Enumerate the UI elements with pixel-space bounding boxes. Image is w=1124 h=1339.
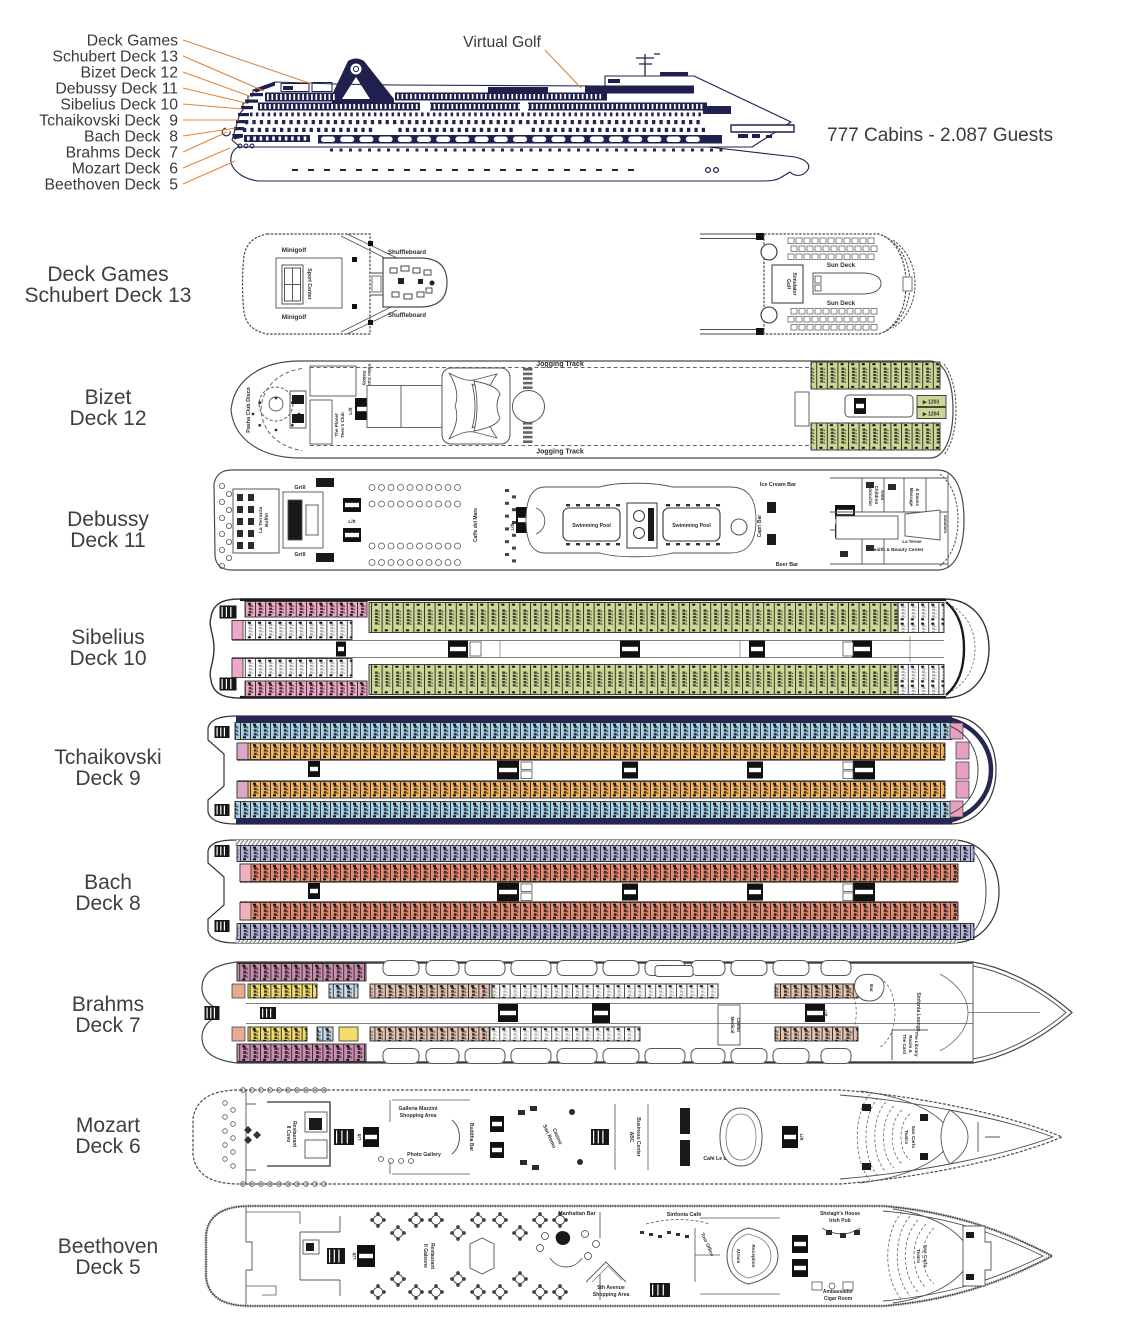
- svg-text:Photo Gallery: Photo Gallery: [407, 1152, 441, 1158]
- svg-text:Deck Games: Deck Games: [47, 263, 168, 286]
- svg-text:Shopping Area: Shopping Area: [593, 1292, 630, 1298]
- svg-text:Simulator: Simulator: [791, 272, 797, 295]
- svg-text:Deck 9: Deck 9: [75, 767, 140, 790]
- svg-text:Galleria Mazzini: Galleria Mazzini: [399, 1106, 438, 1112]
- svg-text:Deck 7: Deck 7: [75, 1014, 140, 1037]
- svg-text:Debussy: Debussy: [67, 508, 149, 531]
- svg-text:Il Covo: Il Covo: [285, 1126, 291, 1143]
- svg-text:5th Avenue: 5th Avenue: [597, 1285, 625, 1291]
- svg-text:Teatro: Teatro: [903, 1130, 909, 1144]
- svg-text:Jogging Track: Jogging Track: [536, 361, 584, 368]
- svg-text:Schubert Deck 13: Schubert Deck 13: [25, 284, 192, 307]
- svg-text:Teen's Club: Teen's Club: [340, 412, 345, 438]
- svg-text:Caffe del Mare: Caffe del Mare: [473, 508, 479, 542]
- svg-text:Golf: Golf: [785, 279, 791, 289]
- svg-text:Swimming Pool: Swimming Pool: [672, 523, 711, 529]
- svg-text:Business Center: Business Center: [635, 1117, 641, 1157]
- svg-text:Minigolf: Minigolf: [282, 314, 307, 321]
- svg-text:Sinfonia Lounge: Sinfonia Lounge: [915, 992, 921, 1031]
- svg-text:Sport Center: Sport Center: [306, 268, 312, 299]
- svg-text:Buffet: Buffet: [264, 513, 270, 527]
- svg-text:Restaurant: Restaurant: [291, 1121, 297, 1147]
- svg-text:777 Cabins - 2.087 Guests: 777 Cabins - 2.087 Guests: [827, 125, 1053, 146]
- svg-text:Deck Games: Deck Games: [87, 33, 178, 50]
- svg-text:Sun Deck: Sun Deck: [827, 262, 856, 269]
- svg-text:Bach Deck 8: Bach Deck 8: [84, 129, 178, 146]
- svg-text:Buddha Bar: Buddha Bar: [468, 1123, 474, 1151]
- svg-text:Galaxy: Galaxy: [362, 370, 367, 386]
- svg-text:Bizet: Bizet: [85, 386, 132, 409]
- svg-text:Lift: Lift: [352, 1252, 357, 1259]
- svg-text:La Terrazza: La Terrazza: [258, 507, 264, 533]
- svg-text:Debussy Deck 11: Debussy Deck 11: [55, 81, 178, 98]
- svg-text:Area: Area: [880, 490, 885, 501]
- svg-text:Solarium: Solarium: [943, 515, 948, 533]
- svg-text:▶ 1204: ▶ 1204: [922, 412, 940, 418]
- svg-text:Tchaikovski: Tchaikovski: [54, 746, 161, 769]
- svg-text:Irish Pub: Irish Pub: [829, 1218, 850, 1224]
- svg-text:Lift: Lift: [348, 407, 353, 415]
- svg-text:Manhattan Bar: Manhattan Bar: [558, 1211, 596, 1217]
- svg-text:Shelagh's House: Shelagh's House: [820, 1211, 860, 1217]
- svg-text:Room &: Room &: [908, 1035, 913, 1053]
- svg-text:Lift: Lift: [799, 1134, 804, 1141]
- svg-text:Mozart Deck 6: Mozart Deck 6: [72, 161, 178, 178]
- svg-text:Beethoven Deck 5: Beethoven Deck 5: [45, 177, 179, 194]
- svg-text:La Terme: La Terme: [902, 539, 922, 544]
- svg-text:Sibelius Deck 10: Sibelius Deck 10: [60, 97, 178, 114]
- svg-text:San Carlo: San Carlo: [910, 1126, 916, 1148]
- svg-text:Deck 10: Deck 10: [69, 647, 146, 670]
- svg-text:Sibelius: Sibelius: [71, 626, 145, 649]
- svg-text:Brahms Deck 7: Brahms Deck 7: [66, 145, 178, 162]
- svg-text:Shuffleboard: Shuffleboard: [388, 249, 426, 256]
- svg-text:Deck 5: Deck 5: [75, 1256, 140, 1279]
- svg-text:Bizet Deck 12: Bizet Deck 12: [81, 65, 178, 82]
- svg-text:& Sauna: & Sauna: [915, 488, 920, 506]
- svg-text:Shopping Area: Shopping Area: [400, 1113, 437, 1119]
- svg-text:Beer Bar: Beer Bar: [776, 562, 799, 568]
- svg-text:Minigolf: Minigolf: [282, 247, 307, 254]
- svg-text:Lift: Lift: [510, 523, 515, 530]
- svg-text:Lift: Lift: [823, 1010, 828, 1017]
- svg-text:Virtual Golf: Virtual Golf: [463, 34, 541, 51]
- svg-text:Children: Children: [874, 486, 879, 505]
- svg-text:Deck 8: Deck 8: [75, 892, 140, 915]
- svg-text:Mozart: Mozart: [76, 1114, 140, 1137]
- svg-text:Medical: Medical: [730, 1017, 735, 1034]
- svg-text:▶ 1203: ▶ 1203: [922, 400, 940, 406]
- svg-text:Tchaikovski Deck 9: Tchaikovski Deck 9: [39, 113, 178, 130]
- svg-text:Shuffleboard: Shuffleboard: [388, 312, 426, 319]
- svg-text:Jogging Track: Jogging Track: [536, 449, 584, 456]
- svg-text:Deck 11: Deck 11: [70, 529, 145, 552]
- svg-text:Brahms: Brahms: [72, 993, 144, 1016]
- svg-text:Schubert Deck 13: Schubert Deck 13: [52, 49, 178, 66]
- svg-text:ABC: ABC: [628, 1132, 634, 1143]
- svg-text:Teatro: Teatro: [915, 1249, 921, 1263]
- svg-text:San Carlo: San Carlo: [922, 1245, 928, 1267]
- svg-text:Deck 6: Deck 6: [75, 1135, 140, 1158]
- svg-text:Massage: Massage: [909, 488, 914, 507]
- svg-text:Pasha Club Disco: Pasha Club Disco: [246, 387, 252, 433]
- svg-text:The Card: The Card: [902, 1034, 907, 1054]
- svg-text:Health & Beauty Center: Health & Beauty Center: [870, 547, 923, 553]
- svg-text:Ice Cream Bar: Ice Cream Bar: [760, 482, 797, 488]
- svg-text:Lift: Lift: [348, 519, 356, 524]
- svg-text:Grill: Grill: [294, 552, 306, 558]
- svg-text:Reception: Reception: [750, 1244, 756, 1267]
- svg-text:Grill: Grill: [294, 485, 306, 491]
- svg-text:The Library: The Library: [914, 1031, 919, 1056]
- svg-text:Beethoven: Beethoven: [58, 1235, 158, 1258]
- svg-text:The Planet: The Planet: [334, 413, 339, 437]
- svg-text:Deck 12: Deck 12: [69, 407, 146, 430]
- svg-text:Capri Bar: Capri Bar: [757, 515, 763, 538]
- svg-text:Center: Center: [736, 1018, 741, 1033]
- svg-text:Sun Deck: Sun Deck: [827, 300, 856, 307]
- svg-text:Restaurant: Restaurant: [429, 1243, 435, 1269]
- svg-text:Bach: Bach: [84, 871, 132, 894]
- svg-text:Bar: Bar: [868, 984, 874, 992]
- svg-text:Sinfonia Café: Sinfonia Café: [667, 1212, 701, 1218]
- svg-text:Swimming Pool: Swimming Pool: [572, 523, 611, 529]
- svg-text:Atrium: Atrium: [736, 1249, 741, 1264]
- svg-text:Cigar Room: Cigar Room: [824, 1296, 853, 1302]
- svg-text:Lift: Lift: [357, 1133, 362, 1140]
- svg-text:Il Galeone: Il Galeone: [422, 1244, 428, 1268]
